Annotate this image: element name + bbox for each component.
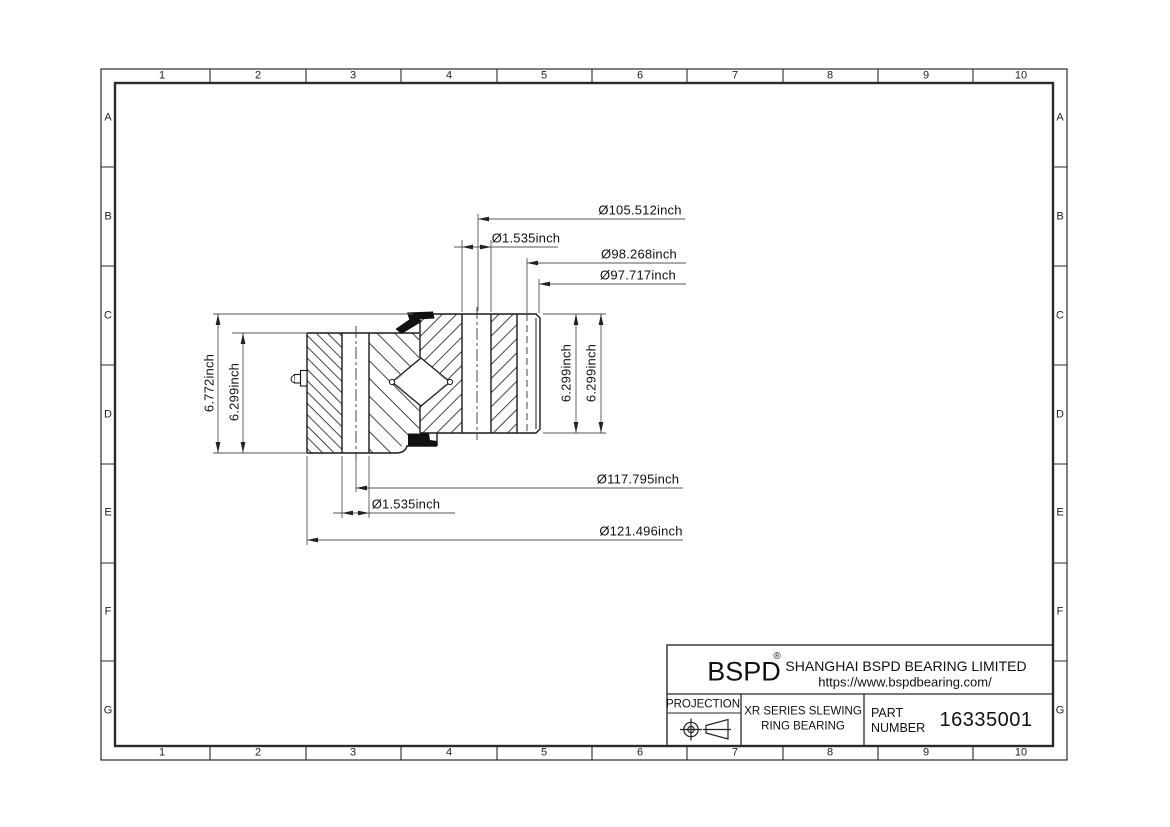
drawing-svg — [0, 0, 1170, 827]
part-label-line1: PART — [871, 707, 903, 720]
company-website: https://www.bspdbearing.com/ — [818, 676, 991, 689]
row-label-left-e: E — [104, 508, 111, 519]
dim-inner-hole: Ø1.535inch — [372, 498, 441, 511]
dim-total-height: 6.772inch — [203, 354, 216, 412]
first-angle-projection-icon — [680, 719, 731, 741]
row-label-right-c: C — [1056, 311, 1064, 322]
row-label-right-d: D — [1056, 410, 1064, 421]
dim-inner-bolt-circle: Ø117.795inch — [597, 473, 679, 486]
column-label-top-2: 2 — [255, 71, 261, 82]
column-label-bottom-6: 6 — [637, 748, 643, 759]
dim-outer-bolt-circle: Ø105.512inch — [598, 204, 681, 217]
column-label-top-7: 7 — [732, 71, 738, 82]
column-label-top-10: 10 — [1015, 71, 1027, 82]
inner-ring-left-block — [307, 333, 342, 453]
column-label-bottom-8: 8 — [827, 748, 833, 759]
column-label-top-4: 4 — [446, 71, 452, 82]
column-label-top-6: 6 — [637, 71, 643, 82]
column-label-bottom-7: 7 — [732, 748, 738, 759]
column-label-bottom-1: 1 — [159, 748, 165, 759]
dim-outer-hole: Ø1.535inch — [492, 232, 561, 245]
row-label-right-e: E — [1056, 508, 1063, 519]
column-label-bottom-2: 2 — [255, 748, 261, 759]
outer-ring-right-block — [491, 314, 517, 433]
registered-mark: ® — [773, 652, 780, 662]
column-label-bottom-3: 3 — [350, 748, 356, 759]
column-label-top-3: 3 — [350, 71, 356, 82]
row-label-left-a: A — [104, 113, 111, 124]
company-name: SHANGHAI BSPD BEARING LIMITED — [785, 659, 1026, 673]
grease-nipple — [291, 371, 307, 387]
product-name-line2: RING BEARING — [761, 721, 845, 733]
column-label-bottom-9: 9 — [923, 748, 929, 759]
dim-d97: Ø97.717inch — [600, 269, 676, 282]
column-label-top-8: 8 — [827, 71, 833, 82]
row-label-left-c: C — [104, 311, 112, 322]
seal-bottom — [408, 434, 437, 447]
column-label-bottom-5: 5 — [541, 748, 547, 759]
engineering-drawing-canvas: 1 2 3 4 5 6 7 8 9 10 1 2 3 4 5 6 7 8 9 1… — [0, 0, 1170, 827]
brand-logo: BSPD — [707, 659, 781, 686]
row-label-left-b: B — [104, 212, 111, 223]
dim-right-height-2: 6.299inch — [585, 344, 598, 402]
dim-d98: Ø98.268inch — [601, 248, 677, 261]
row-label-right-f: F — [1057, 607, 1064, 618]
projection-label: PROJECTION — [666, 699, 740, 711]
row-label-right-a: A — [1056, 113, 1063, 124]
row-label-right-g: G — [1056, 706, 1065, 717]
column-label-top-5: 5 — [541, 71, 547, 82]
row-label-left-d: D — [104, 410, 112, 421]
dim-outside-diameter: Ø121.496inch — [599, 525, 682, 538]
column-label-bottom-4: 4 — [446, 748, 452, 759]
column-label-bottom-10: 10 — [1015, 748, 1027, 759]
dim-right-height-1: 6.299inch — [560, 344, 573, 402]
part-number-value: 16335001 — [940, 710, 1033, 730]
frame-border — [101, 69, 1067, 760]
part-label-line2: NUMBER — [871, 722, 925, 735]
column-label-top-9: 9 — [923, 71, 929, 82]
dim-inner-height: 6.299inch — [228, 363, 241, 421]
row-label-right-b: B — [1056, 212, 1063, 223]
row-label-left-f: F — [105, 607, 112, 618]
product-name-line1: XR SERIES SLEWING — [744, 706, 862, 718]
row-label-left-g: G — [104, 706, 113, 717]
column-label-top-1: 1 — [159, 71, 165, 82]
bearing-section — [291, 307, 540, 460]
